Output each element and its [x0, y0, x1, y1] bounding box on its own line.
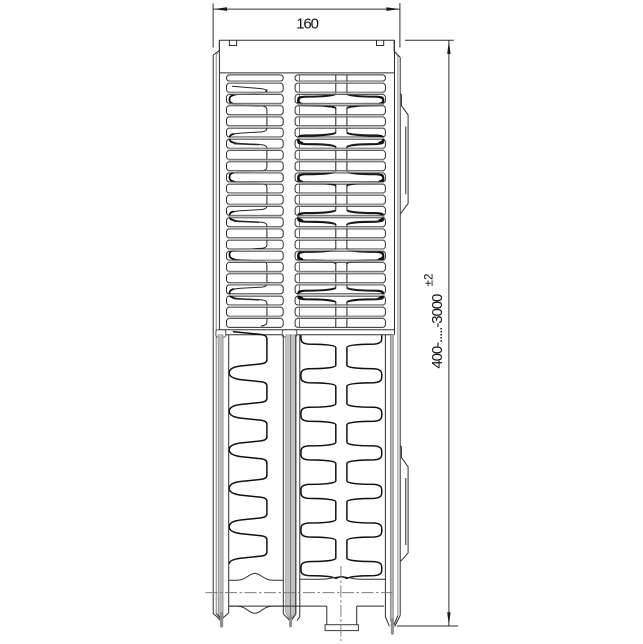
svg-text:160: 160	[296, 16, 318, 33]
svg-text:400-.....-3000: 400-.....-3000	[429, 294, 446, 369]
svg-text:±2: ±2	[424, 274, 436, 287]
